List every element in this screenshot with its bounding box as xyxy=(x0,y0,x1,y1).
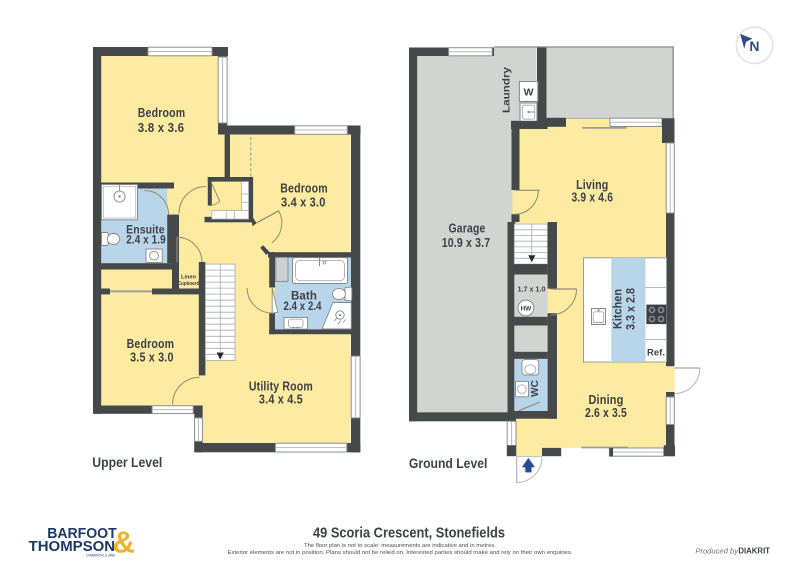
svg-text:DIAKRIT: DIAKRIT xyxy=(738,547,770,556)
svg-text:Bedroom: Bedroom xyxy=(280,180,328,195)
svg-text:HW: HW xyxy=(521,306,533,313)
svg-text:Ground Level: Ground Level xyxy=(409,456,488,471)
svg-text:3.4 x 3.0: 3.4 x 3.0 xyxy=(281,194,326,209)
svg-text:Produced by: Produced by xyxy=(695,547,739,556)
svg-text:Exterior elements are not in p: Exterior elements are not in position. P… xyxy=(228,550,573,556)
svg-text:3.4 x 4.5: 3.4 x 4.5 xyxy=(259,391,303,406)
svg-text:Upper Level: Upper Level xyxy=(92,455,162,470)
svg-text:2.4 x 1.9: 2.4 x 1.9 xyxy=(126,235,166,247)
svg-text:3.9 x 4.6: 3.9 x 4.6 xyxy=(572,190,614,205)
svg-text:Cupboard: Cupboard xyxy=(178,281,200,287)
svg-text:Laundry: Laundry xyxy=(501,67,513,113)
svg-text:10.9 x 3.7: 10.9 x 3.7 xyxy=(442,235,491,250)
svg-text:3.3 x 2.8: 3.3 x 2.8 xyxy=(626,287,638,330)
svg-text:WC: WC xyxy=(530,380,541,397)
svg-text:2.6 x 3.5: 2.6 x 3.5 xyxy=(585,405,627,420)
svg-text:The floor plan is not to scale: The floor plan is not to scale; measurem… xyxy=(304,543,496,549)
svg-text:3.8 x 3.6: 3.8 x 3.6 xyxy=(138,120,185,135)
svg-text:3.5 x 3.0: 3.5 x 3.0 xyxy=(130,349,174,364)
svg-text:Kitchen: Kitchen xyxy=(613,289,625,329)
svg-text:Linen: Linen xyxy=(181,275,196,281)
svg-text:1.7 x 1.0: 1.7 x 1.0 xyxy=(518,285,546,294)
svg-text:N: N xyxy=(749,38,759,54)
svg-text:49 Scoria Crescent, Stonefield: 49 Scoria Crescent, Stonefields xyxy=(313,526,505,542)
svg-text:&: & xyxy=(113,525,135,560)
svg-text:COMMERCIAL & LAND: COMMERCIAL & LAND xyxy=(86,554,115,558)
svg-text:THOMPSON: THOMPSON xyxy=(29,538,116,555)
svg-text:Ref.: Ref. xyxy=(647,348,665,359)
svg-text:W: W xyxy=(524,87,534,99)
svg-text:Bedroom: Bedroom xyxy=(138,105,186,120)
svg-text:Garage: Garage xyxy=(449,221,486,236)
svg-text:2.4 x 2.4: 2.4 x 2.4 xyxy=(284,301,322,313)
